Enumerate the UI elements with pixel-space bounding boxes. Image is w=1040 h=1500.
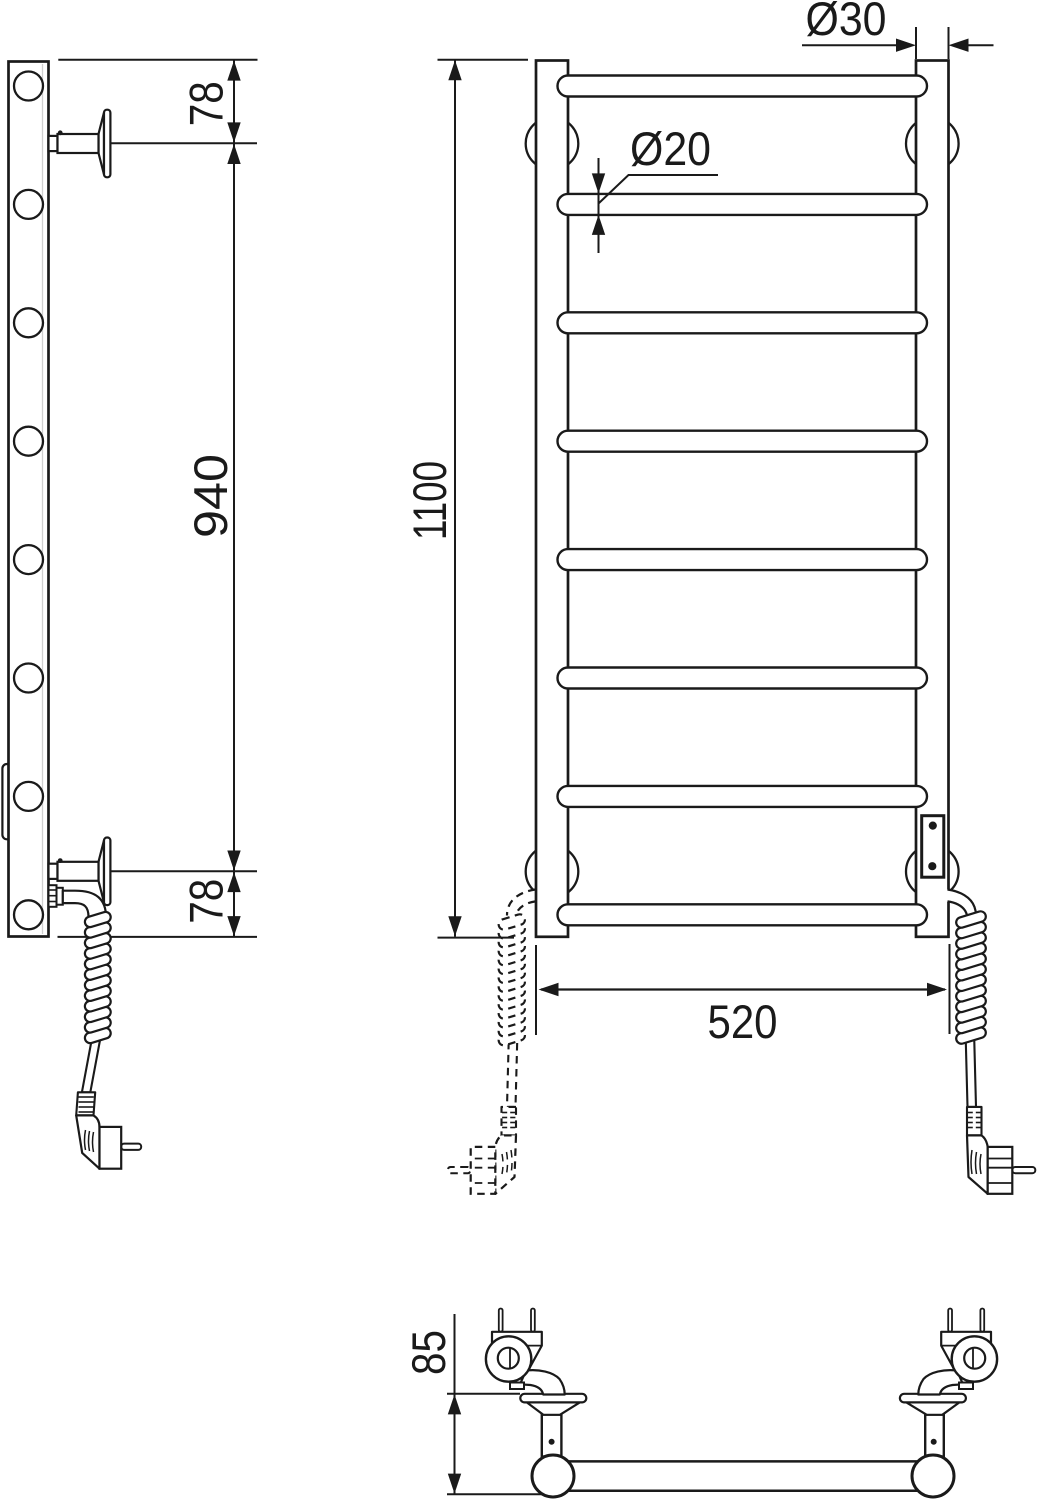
svg-text:Ø30: Ø30 <box>806 0 887 45</box>
svg-text:78: 78 <box>180 81 233 126</box>
svg-text:85: 85 <box>402 1330 455 1375</box>
svg-text:Ø20: Ø20 <box>630 122 711 175</box>
svg-text:78: 78 <box>180 879 233 924</box>
svg-text:1100: 1100 <box>403 461 456 540</box>
svg-text:940: 940 <box>184 454 237 538</box>
svg-text:520: 520 <box>708 995 778 1048</box>
